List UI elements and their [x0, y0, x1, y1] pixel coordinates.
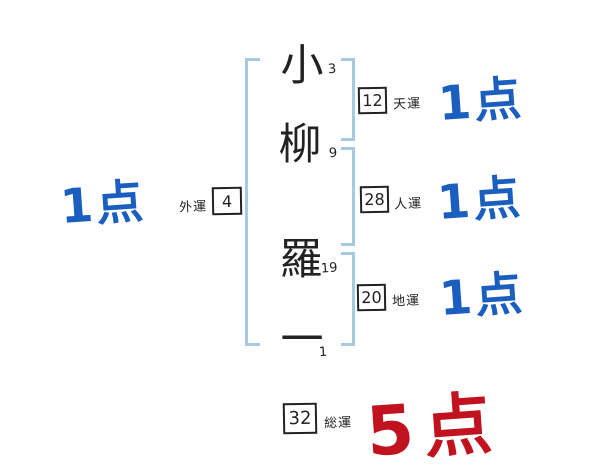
outer-luck-label: 外運: [179, 196, 208, 216]
stroke-count-2: 9: [328, 146, 337, 162]
heaven-luck-score: 1点: [436, 59, 526, 134]
name-char-3: 羅: [277, 237, 325, 283]
name-char-2: 柳: [276, 122, 324, 168]
heaven-luck-value-box: 12: [358, 87, 387, 115]
outer-luck-value-box: 4: [212, 187, 242, 216]
stroke-count-3: 19: [320, 260, 338, 276]
heaven-luck-bracket: [341, 58, 355, 141]
earth-luck-label: 地運: [392, 290, 421, 310]
name-fortune-diagram: 小 柳 羅 一 3 9 19 1 12 天運 1点 28 人運 1点 20 地運…: [0, 0, 600, 470]
person-luck-bracket: [341, 147, 355, 246]
earth-luck-score: 1点: [437, 254, 527, 329]
heaven-luck-label: 天運: [393, 93, 422, 113]
total-luck-score: 5点: [363, 367, 505, 470]
name-char-1: 小: [278, 43, 326, 89]
earth-luck-value-box: 20: [357, 284, 386, 312]
stroke-count-1: 3: [327, 62, 336, 78]
outer-luck-bracket: [245, 58, 260, 346]
total-luck-label: 総運: [324, 412, 353, 432]
person-luck-score: 1点: [435, 158, 525, 233]
outer-luck-score: 1点: [58, 162, 148, 237]
stroke-count-4: 1: [318, 345, 327, 361]
earth-luck-bracket: [341, 252, 355, 346]
total-luck-value-box: 32: [283, 403, 318, 435]
person-luck-label: 人運: [394, 193, 423, 213]
person-luck-value-box: 28: [360, 186, 389, 214]
